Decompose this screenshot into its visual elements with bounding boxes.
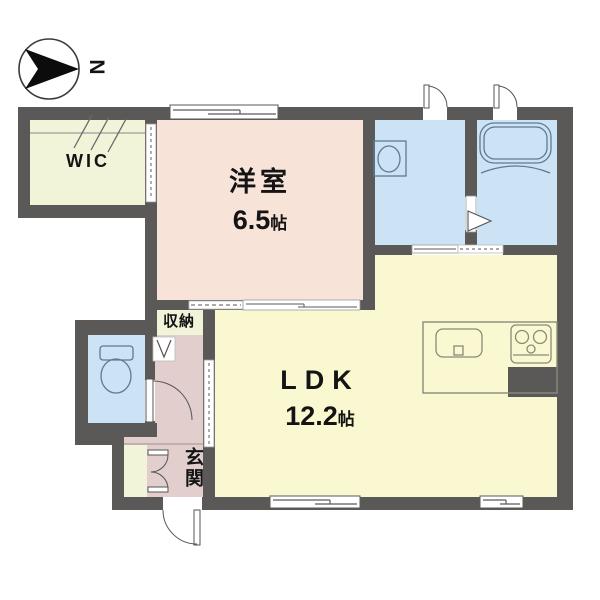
wall-washroom-bottom-r: [503, 245, 557, 255]
floor-plan: N WIC 洋室 6.5帖 LDK 12.2帖 収納 玄関: [0, 0, 600, 600]
compass-n-label: N: [85, 55, 107, 79]
western-room-size: 6.5帖: [180, 206, 340, 234]
wall-washroom-bottom-l: [375, 245, 412, 255]
wall-right: [557, 107, 573, 510]
storage-label: 収納: [153, 314, 205, 330]
ldk-label: LDK: [240, 366, 400, 394]
room-washroom: [375, 120, 465, 245]
wic-label: WIC: [48, 152, 128, 171]
room-toilet: [88, 335, 145, 423]
compass-icon: [19, 39, 79, 99]
sliding-door-washroom: [412, 245, 503, 253]
western-room-label: 洋室: [180, 168, 340, 196]
wall-western-bottom: [145, 300, 375, 310]
ldk-size: 12.2帖: [240, 402, 400, 430]
wall-entrance-left: [112, 437, 124, 510]
room-bathroom: [477, 120, 557, 245]
wall-western-east: [363, 107, 375, 310]
entrance-label: 玄関: [176, 440, 202, 496]
room-shoe-closet: [124, 445, 147, 497]
wall-bath-divider: [465, 107, 477, 197]
western-room-size-value: 6.5: [233, 205, 271, 235]
wall-kitchen-stub: [508, 367, 572, 397]
wall-bath-divider-stub: [465, 230, 477, 245]
wall-toilet-east: [145, 335, 155, 430]
ldk-size-value: 12.2: [285, 401, 338, 431]
western-room-size-unit: 帖: [270, 214, 287, 233]
wall-left-upper: [18, 107, 30, 218]
wall-wic-bottom: [18, 205, 157, 218]
ldk-size-unit: 帖: [338, 410, 355, 429]
wall-top: [18, 107, 573, 120]
wall-bottom: [112, 497, 573, 510]
